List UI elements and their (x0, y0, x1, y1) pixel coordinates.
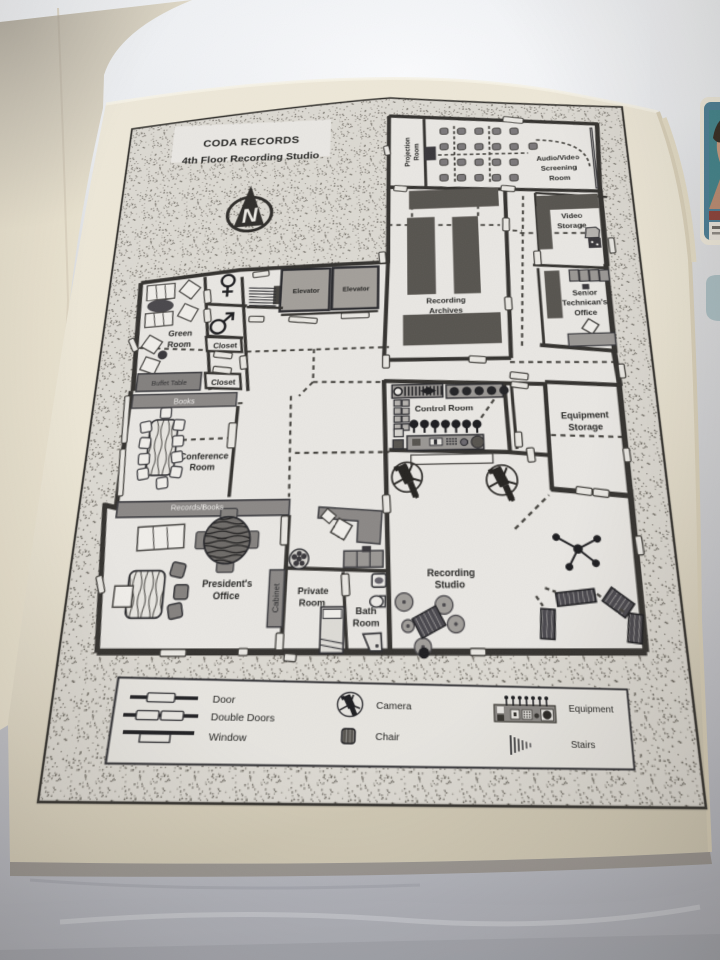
svg-text:Private: Private (297, 586, 329, 597)
svg-text:Bath: Bath (355, 606, 376, 617)
svg-text:N: N (241, 204, 260, 228)
svg-text:Storage: Storage (557, 222, 588, 231)
svg-text:Camera: Camera (376, 700, 413, 711)
svg-text:Storage: Storage (568, 423, 604, 433)
svg-text:Control Room: Control Room (415, 404, 474, 414)
svg-text:Conference: Conference (179, 452, 229, 462)
svg-text:Door: Door (212, 694, 236, 705)
svg-text:Screening: Screening (541, 164, 578, 173)
svg-text:Room: Room (353, 618, 380, 629)
svg-text:Projection: Projection (404, 137, 412, 167)
svg-text:Chair: Chair (375, 731, 399, 742)
svg-text:Elevator: Elevator (342, 286, 370, 294)
svg-text:Room: Room (167, 341, 192, 350)
svg-text:Room: Room (549, 174, 571, 182)
svg-text:Senior: Senior (572, 289, 598, 298)
svg-text:Recording: Recording (427, 568, 475, 579)
svg-text:Elevator: Elevator (292, 288, 320, 296)
svg-text:Window: Window (208, 732, 247, 744)
svg-text:Equipment: Equipment (568, 703, 614, 714)
svg-text:Studio: Studio (435, 580, 465, 591)
svg-text:Room: Room (413, 143, 421, 161)
svg-text:Records/Books: Records/Books (170, 504, 224, 513)
svg-text:Recording: Recording (426, 297, 466, 306)
svg-text:Double Doors: Double Doors (210, 712, 275, 724)
svg-text:Office: Office (574, 309, 598, 318)
svg-text:Room: Room (189, 463, 215, 473)
svg-text:Cabinet: Cabinet (272, 583, 282, 613)
svg-text:Office: Office (212, 592, 240, 602)
svg-text:Green: Green (168, 330, 193, 339)
svg-text:Video: Video (561, 212, 583, 220)
svg-text:Closet: Closet (213, 342, 238, 351)
svg-text:Technican's: Technican's (562, 298, 609, 308)
svg-text:Equipment: Equipment (561, 411, 611, 421)
svg-text:Books: Books (173, 399, 195, 407)
svg-text:Closet: Closet (211, 379, 236, 388)
svg-text:President's: President's (202, 579, 253, 590)
svg-text:Buffet Table: Buffet Table (151, 380, 187, 388)
svg-text:Stairs: Stairs (571, 739, 597, 750)
